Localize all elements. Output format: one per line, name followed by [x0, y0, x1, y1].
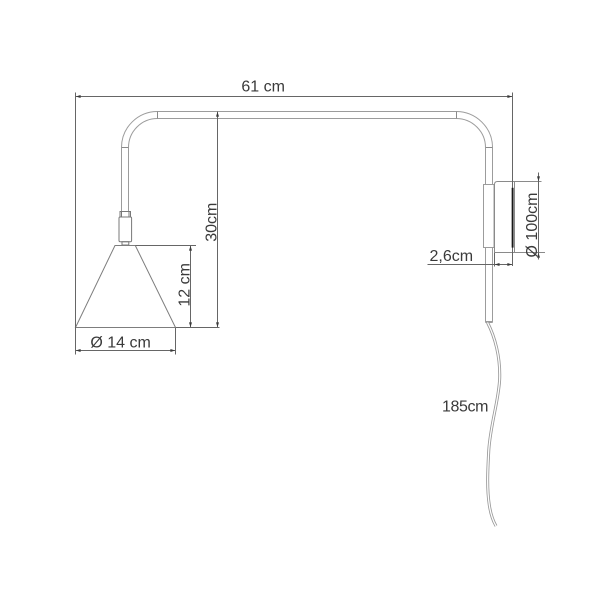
svg-text:Ø 100cm: Ø 100cm	[524, 193, 541, 258]
svg-text:30cm: 30cm	[204, 203, 221, 242]
svg-text:Ø 14 cm: Ø 14 cm	[90, 335, 150, 352]
svg-text:61 cm: 61 cm	[241, 79, 285, 96]
svg-text:185cm: 185cm	[442, 399, 488, 416]
svg-text:12 cm: 12 cm	[177, 263, 194, 307]
svg-text:2,6cm: 2,6cm	[430, 248, 474, 265]
